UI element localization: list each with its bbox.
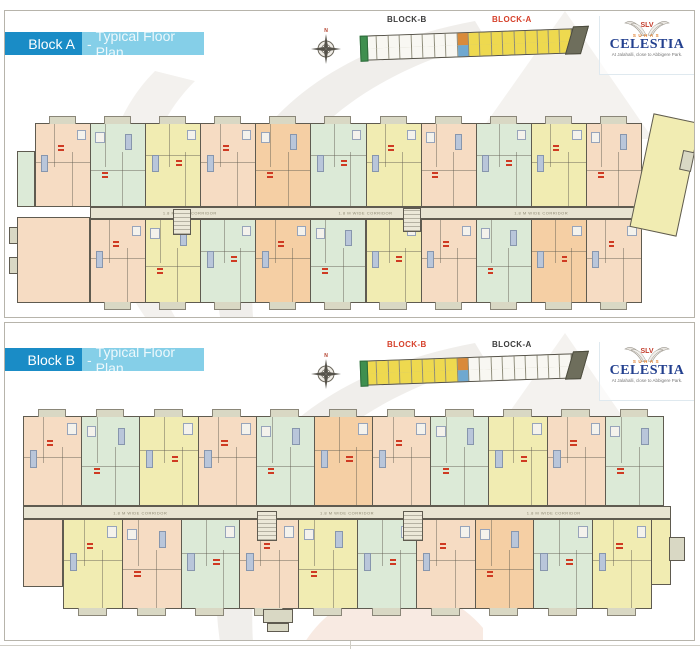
keyplan-unit — [411, 35, 423, 47]
apartment-unit — [145, 123, 201, 207]
corridor-label: 1.8 M WIDE CORRIDOR — [339, 210, 393, 215]
block-b-panel: Block B - Typical Floor Plan N BLOCK-B B… — [4, 322, 695, 641]
block-label: Block A — [4, 32, 82, 55]
keyplan-unit — [514, 356, 526, 368]
keyplan-unit — [389, 372, 401, 384]
keyplan-unit — [377, 36, 389, 48]
header-title: - Typical Floor Plan — [82, 348, 204, 371]
keyplan-unit — [469, 358, 481, 370]
block-a-panel: Block A - Typical Floor Plan N BLOCK-B B… — [4, 10, 695, 318]
plan-block — [669, 537, 685, 561]
plan-block — [651, 519, 671, 585]
header-title-text: Typical Floor Plan — [96, 28, 204, 60]
keyplan-unit — [377, 361, 389, 373]
celestia-text: CELESTIA — [600, 38, 694, 51]
plan-block — [9, 257, 18, 274]
keyplan-unit — [515, 43, 527, 55]
keyplan-unit — [457, 33, 469, 45]
keyplan-unit — [526, 31, 538, 43]
keyplan-unit — [377, 47, 389, 59]
apartment-unit — [416, 519, 476, 609]
apartment-unit — [586, 123, 642, 207]
apartment-unit — [488, 416, 547, 506]
plan-block — [9, 227, 18, 244]
keyplan-label-block-b: BLOCK-B — [387, 15, 427, 24]
header-separator: - — [87, 36, 92, 52]
apartment-unit — [139, 416, 198, 506]
keyplan-unit — [389, 35, 401, 47]
compass-icon: N — [307, 351, 345, 393]
keyplan-unit — [423, 359, 435, 371]
keyplan-unit — [412, 46, 424, 58]
apartment-unit — [605, 416, 664, 506]
plan-block — [17, 151, 35, 207]
apartment-unit — [533, 519, 593, 609]
apartment-unit — [421, 123, 477, 207]
apartment-unit — [90, 123, 146, 207]
keyplan-unit — [549, 355, 561, 367]
corridor: 1.8 M WIDE CORRIDOR1.8 M WIDE CORRIDOR1.… — [23, 506, 671, 519]
keyplan-strip — [365, 353, 574, 385]
keyplan-unit — [549, 30, 561, 42]
keyplan-unit — [526, 42, 538, 54]
keyplan-end-cap — [360, 361, 369, 387]
keyplan-unit — [411, 360, 423, 372]
corridor-label: 1.8 M WIDE CORRIDOR — [514, 210, 568, 215]
plan-block — [263, 609, 293, 623]
apartment-unit — [592, 519, 652, 609]
apartment-unit — [310, 219, 366, 303]
keyplan-unit — [446, 370, 458, 382]
keyplan-unit — [538, 42, 550, 54]
apartment-unit — [63, 519, 123, 609]
staircase — [403, 208, 421, 232]
plan-block — [267, 623, 289, 632]
keyplan-unit — [526, 367, 538, 379]
keyplan-unit — [423, 46, 435, 58]
corridor-label: 1.8 M WIDE CORRIDOR — [527, 510, 581, 515]
keyplan-unit — [457, 358, 469, 370]
apartment-unit — [421, 219, 477, 303]
apartment-unit — [81, 416, 140, 506]
keyplan-unit — [503, 43, 515, 55]
svg-text:N: N — [324, 353, 328, 359]
apartment-unit — [255, 123, 311, 207]
apartment-unit — [366, 123, 422, 207]
apartment-unit — [310, 123, 366, 207]
keyplan-unit — [389, 360, 401, 372]
keyplan-unit — [492, 368, 504, 380]
corridor-label: 1.8 M WIDE CORRIDOR — [320, 510, 374, 515]
brand-tagline: At Jalahalli, close to Abbigere Park. — [600, 52, 694, 57]
keyplan-unit — [400, 46, 412, 58]
keyplan: BLOCK-B BLOCK-A — [357, 340, 585, 382]
apartment-unit — [476, 123, 532, 207]
celestia-text: CELESTIA — [600, 364, 694, 377]
keyplan-unit — [446, 358, 458, 370]
apartment-unit — [200, 219, 256, 303]
plan-block — [17, 217, 90, 303]
keyplan-unit — [435, 45, 447, 57]
brand-logo: SLV SUHAS CELESTIA At Jalahalli, close t… — [599, 16, 694, 75]
header-title: - Typical Floor Plan — [82, 32, 204, 55]
keyplan-unit — [446, 45, 458, 57]
keyplan-unit — [435, 370, 447, 382]
keyplan-unit — [469, 369, 481, 381]
staircase — [257, 511, 277, 541]
apartment-unit — [531, 123, 587, 207]
keyplan-unit — [549, 41, 561, 53]
apartment-unit — [476, 219, 532, 303]
keyplan-unit — [514, 31, 526, 43]
header-title-text: Typical Floor Plan — [96, 344, 204, 376]
slv-text: SLV — [600, 22, 694, 29]
apartment-unit — [372, 416, 431, 506]
corridor-label: 1.8 M WIDE CORRIDOR — [113, 510, 167, 515]
apartment-unit — [90, 219, 146, 303]
apartment-unit — [255, 219, 311, 303]
keyplan-unit — [515, 368, 527, 380]
staircase — [403, 511, 423, 541]
page-crop-tick — [350, 641, 351, 649]
keyplan-unit — [526, 356, 538, 368]
keyplan-label-block-b: BLOCK-B — [387, 340, 427, 349]
keyplan-unit — [503, 356, 515, 368]
block-label: Block B — [4, 348, 82, 371]
keyplan-unit — [434, 359, 446, 371]
keyplan-unit — [549, 366, 561, 378]
keyplan-unit — [400, 371, 412, 383]
svg-text:N: N — [324, 28, 328, 34]
panel-header: Block B - Typical Floor Plan — [4, 348, 204, 371]
keyplan-unit — [434, 34, 446, 46]
keyplan-unit — [492, 43, 504, 55]
keyplan-unit — [480, 32, 492, 44]
apartment-unit — [547, 416, 606, 506]
apartment-unit — [23, 416, 82, 506]
apartment-unit — [475, 519, 535, 609]
compass-icon: N — [307, 26, 345, 68]
keyplan-unit — [537, 30, 549, 42]
brochure-page: { "branding": { "slv": "SLV", "name_top"… — [0, 0, 700, 649]
keyplan-unit — [538, 367, 550, 379]
panel-header: Block A - Typical Floor Plan — [4, 32, 204, 55]
keyplan-unit — [458, 370, 470, 382]
keyplan-unit — [423, 371, 435, 383]
plan-block — [679, 150, 695, 172]
keyplan-label-block-a: BLOCK-A — [492, 15, 532, 24]
keyplan-unit — [480, 369, 492, 381]
apartment-unit — [256, 416, 315, 506]
keyplan-unit — [491, 32, 503, 44]
keyplan: BLOCK-B BLOCK-A — [357, 15, 585, 57]
keyplan-unit — [503, 368, 515, 380]
apartment-unit — [430, 416, 489, 506]
brand-logo: SLV SUHAS CELESTIA At Jalahalli, close t… — [599, 342, 694, 401]
apartment-unit — [586, 219, 642, 303]
keyplan-label-block-a: BLOCK-A — [492, 340, 532, 349]
keyplan-unit — [377, 372, 389, 384]
keyplan-unit — [469, 33, 481, 45]
keyplan-strip — [365, 28, 574, 60]
slv-text: SLV — [600, 348, 694, 355]
keyplan-unit — [480, 44, 492, 56]
apartment-unit — [531, 219, 587, 303]
keyplan-unit — [400, 35, 412, 47]
keyplan-unit — [423, 34, 435, 46]
plan-block — [23, 519, 63, 587]
keyplan-unit — [491, 357, 503, 369]
apartment-unit — [200, 123, 256, 207]
staircase — [173, 209, 191, 235]
keyplan-end-cap — [360, 36, 369, 62]
keyplan-unit — [469, 44, 481, 56]
keyplan-unit — [446, 33, 458, 45]
apartment-unit — [122, 519, 182, 609]
apartment-unit — [181, 519, 241, 609]
header-separator: - — [87, 352, 92, 368]
keyplan-unit — [537, 355, 549, 367]
keyplan-unit — [389, 47, 401, 59]
keyplan-unit — [503, 31, 515, 43]
brand-tagline: At Jalahalli, close to Abbigere Park. — [600, 378, 694, 383]
keyplan-unit — [458, 45, 470, 57]
keyplan-unit — [480, 357, 492, 369]
keyplan-unit — [412, 371, 424, 383]
apartment-unit — [35, 123, 91, 207]
apartment-unit — [198, 416, 257, 506]
apartment-unit — [314, 416, 373, 506]
keyplan-unit — [400, 360, 412, 372]
apartment-unit — [298, 519, 358, 609]
